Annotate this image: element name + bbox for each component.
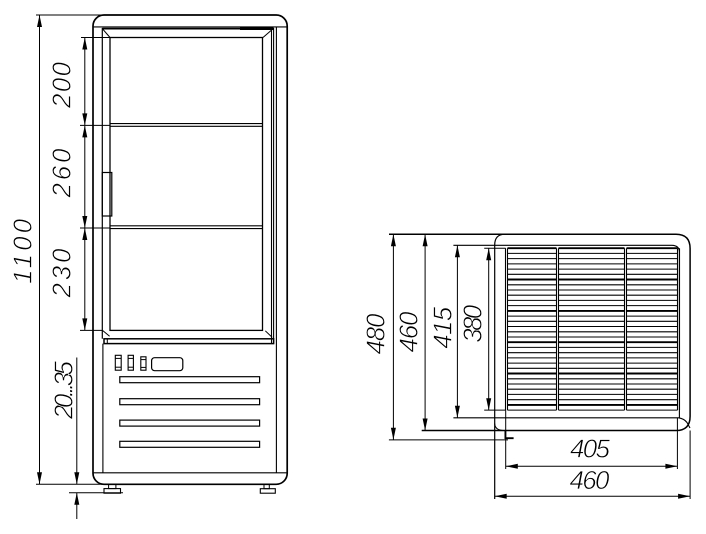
svg-text:200: 200 xyxy=(47,61,77,109)
svg-text:480: 480 xyxy=(361,313,391,355)
svg-text:230: 230 xyxy=(47,248,77,299)
svg-text:260: 260 xyxy=(47,148,77,199)
svg-text:460: 460 xyxy=(570,465,611,495)
svg-text:415: 415 xyxy=(428,306,458,349)
svg-text:460: 460 xyxy=(394,311,424,353)
svg-text:20...35: 20...35 xyxy=(49,360,79,420)
svg-text:380: 380 xyxy=(458,304,488,343)
svg-text:405: 405 xyxy=(570,434,611,464)
svg-text:1100: 1100 xyxy=(8,218,38,284)
